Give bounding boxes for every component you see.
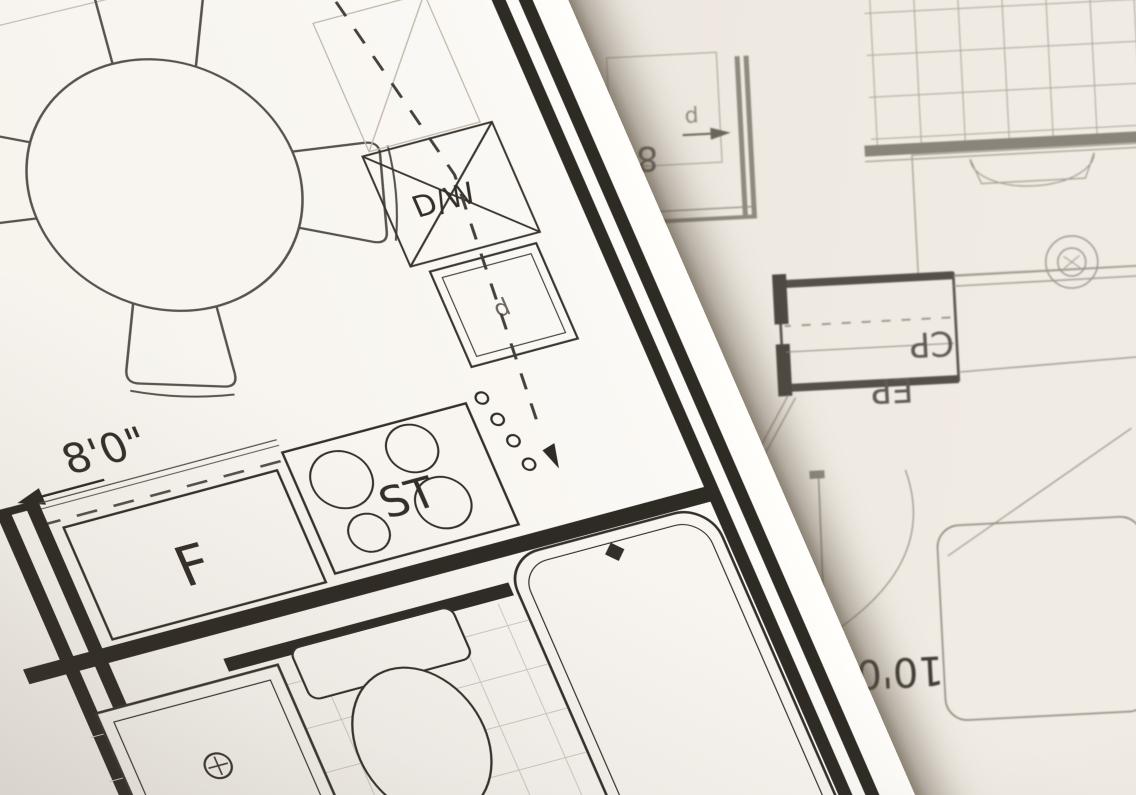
closet-label: CP [909, 322, 955, 364]
dining-set [0, 0, 475, 452]
closet-label-2: EP [870, 368, 914, 410]
wall-band [864, 131, 1136, 157]
dishwasher-label: D/W [407, 176, 482, 224]
dining-chair [120, 303, 237, 398]
width-dimension: 8'0" [54, 417, 155, 484]
rug [932, 428, 1136, 721]
tile-grid [862, 0, 1136, 147]
desk-chair [970, 153, 1095, 189]
dining-chair [92, 0, 209, 67]
desk [912, 143, 1136, 277]
door-mark: p [684, 104, 699, 130]
wall-lines [953, 244, 1136, 372]
blueprint-photo: CP EP [0, 0, 1136, 795]
corner-cabinet [313, 0, 480, 152]
bathtub [504, 504, 853, 795]
dining-table [0, 30, 345, 340]
faint-wall-line [0, 0, 284, 63]
dining-chair [292, 140, 401, 243]
